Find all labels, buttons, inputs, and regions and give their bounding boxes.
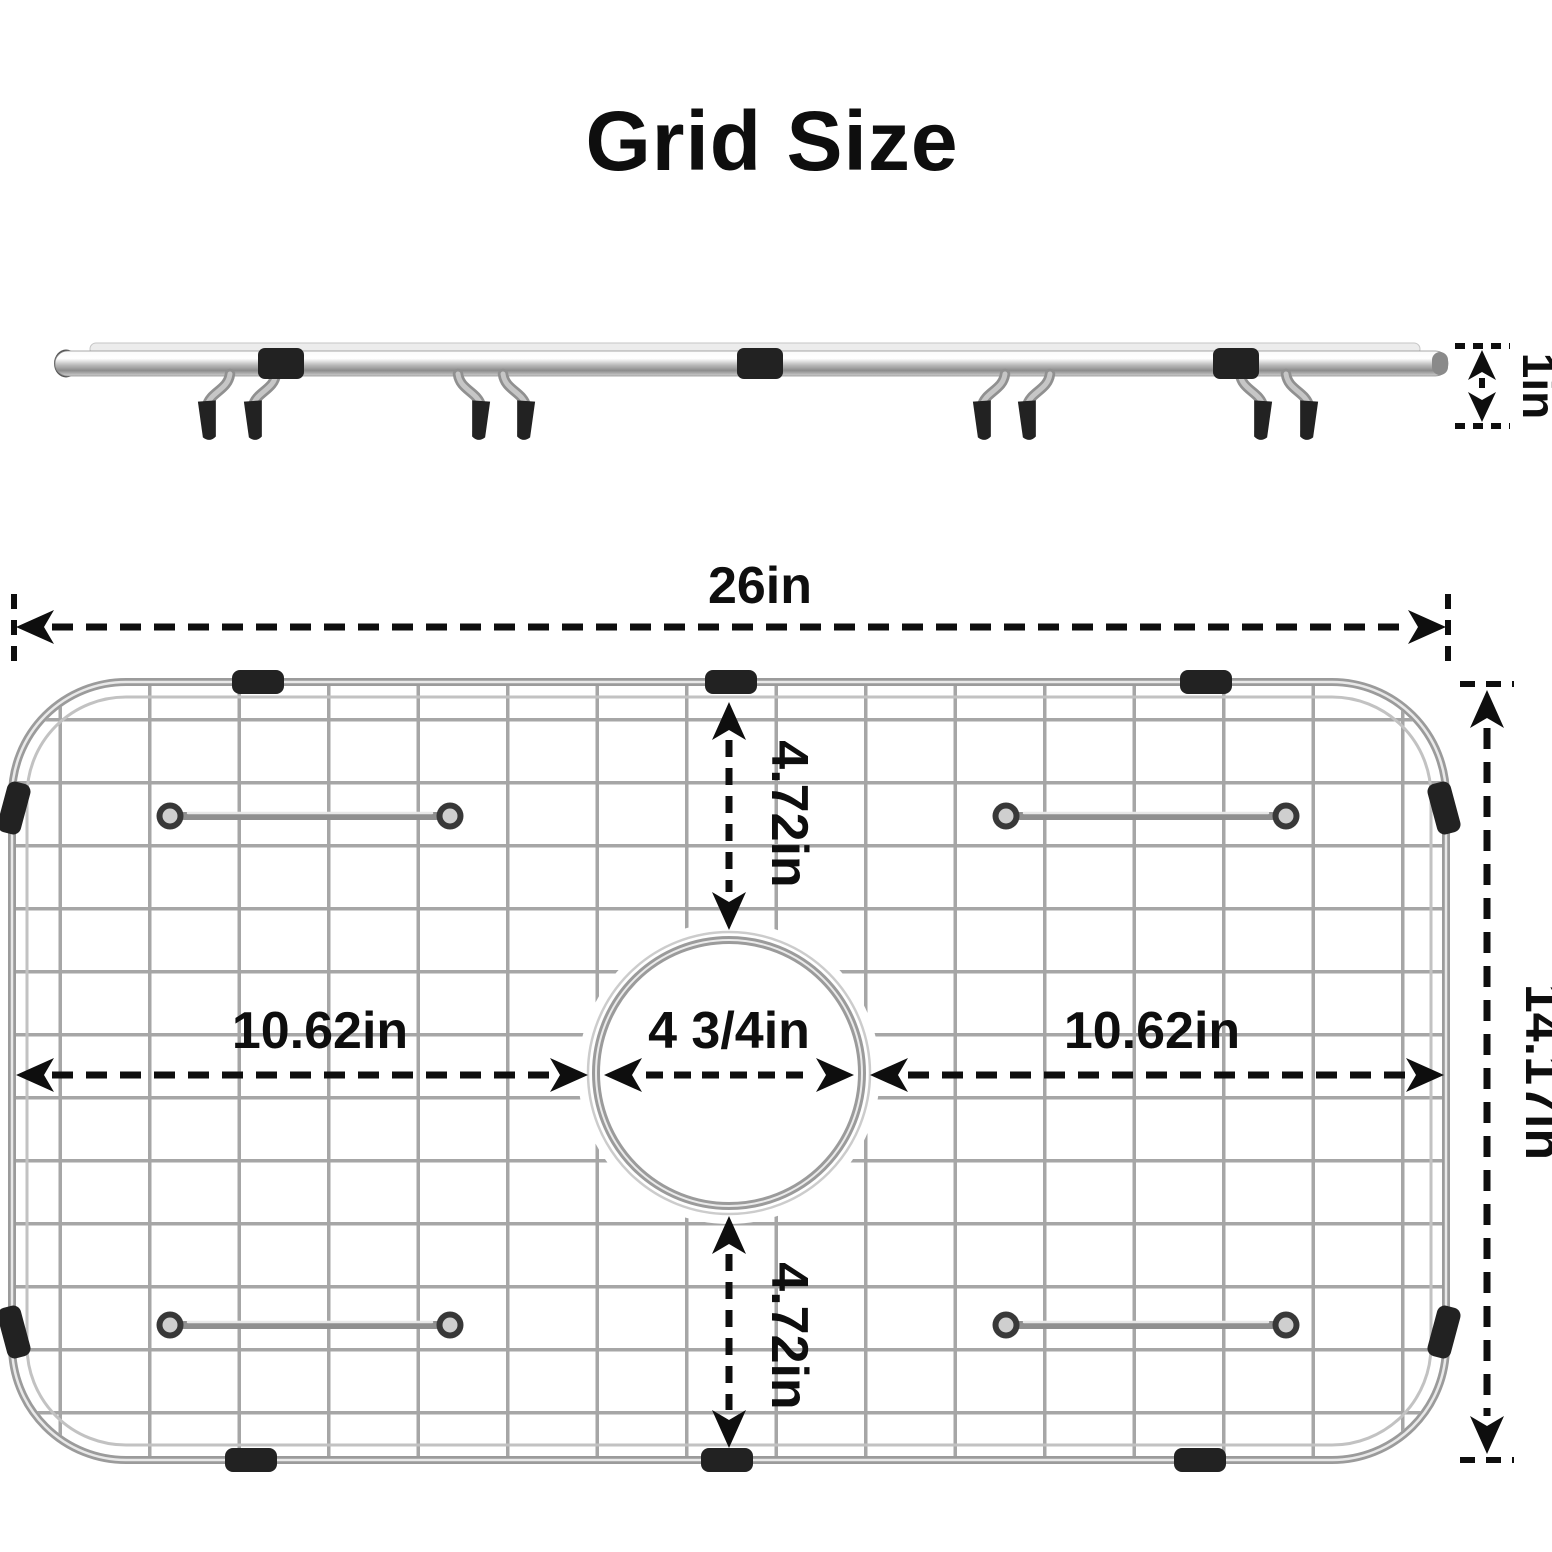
arrowhead-down	[1470, 1416, 1504, 1454]
rubber-foot-tip	[973, 400, 994, 440]
rubber-foot-tip	[1018, 400, 1039, 440]
rubber-bumper	[225, 1448, 277, 1472]
rubber-foot-tip	[198, 400, 219, 440]
dim-label-right-span: 10.62in	[1064, 1002, 1240, 1060]
rubber-clip	[737, 348, 783, 379]
dim-label-bottom-offset: 4.72in	[760, 1262, 818, 1409]
diagram-canvas: Grid Size	[0, 0, 1552, 1552]
dim-label-top-offset: 4.72in	[760, 740, 818, 887]
handle-eyelet-center	[1279, 809, 1294, 824]
arrowhead-down	[1468, 392, 1496, 422]
side-legs	[198, 374, 1318, 441]
rubber-foot-tip	[244, 400, 265, 440]
handle-eyelet-center	[163, 1318, 178, 1333]
rubber-bumper	[705, 670, 757, 694]
rubber-foot-tip	[514, 400, 535, 440]
handle-eyelet-center	[163, 809, 178, 824]
rubber-foot-tip	[1297, 400, 1318, 440]
arrowhead-left	[16, 610, 54, 644]
rubber-bumper	[232, 670, 284, 694]
dimension-1in: 1in	[1455, 346, 1552, 426]
dim-label-left-span: 10.62in	[232, 1002, 408, 1060]
page-title: Grid Size	[585, 94, 958, 188]
rubber-foot-tip	[469, 400, 490, 440]
handle-eyelet-center	[443, 809, 458, 824]
handle-eyelet-center	[443, 1318, 458, 1333]
rubber-foot-tip	[1251, 400, 1272, 440]
dimension-14-17in: 14.17in	[1460, 684, 1552, 1460]
dim-label-14-17in: 14.17in	[1514, 984, 1552, 1160]
rubber-bumper	[1180, 670, 1232, 694]
side-view: 1in	[54, 343, 1552, 441]
dim-label-drain: 4 3/4in	[648, 1002, 810, 1060]
arrowhead-up	[1468, 350, 1496, 380]
handle-eyelet-center	[999, 1318, 1014, 1333]
sink-grid-diagram: Grid Size	[0, 0, 1552, 1552]
rubber-bumper	[701, 1448, 753, 1472]
rubber-bumper	[1174, 1448, 1226, 1472]
arrowhead-right	[1408, 610, 1446, 644]
rubber-clip	[258, 348, 304, 379]
dim-label-1in: 1in	[1513, 353, 1552, 419]
rubber-clip	[1213, 348, 1259, 379]
handle-eyelet-center	[1279, 1318, 1294, 1333]
arrowhead-up	[1470, 690, 1504, 728]
side-right-end-cap	[1432, 352, 1448, 375]
handle-eyelet-center	[999, 809, 1014, 824]
dim-label-26in: 26in	[708, 557, 812, 615]
dimension-26in: 26in	[14, 557, 1448, 664]
